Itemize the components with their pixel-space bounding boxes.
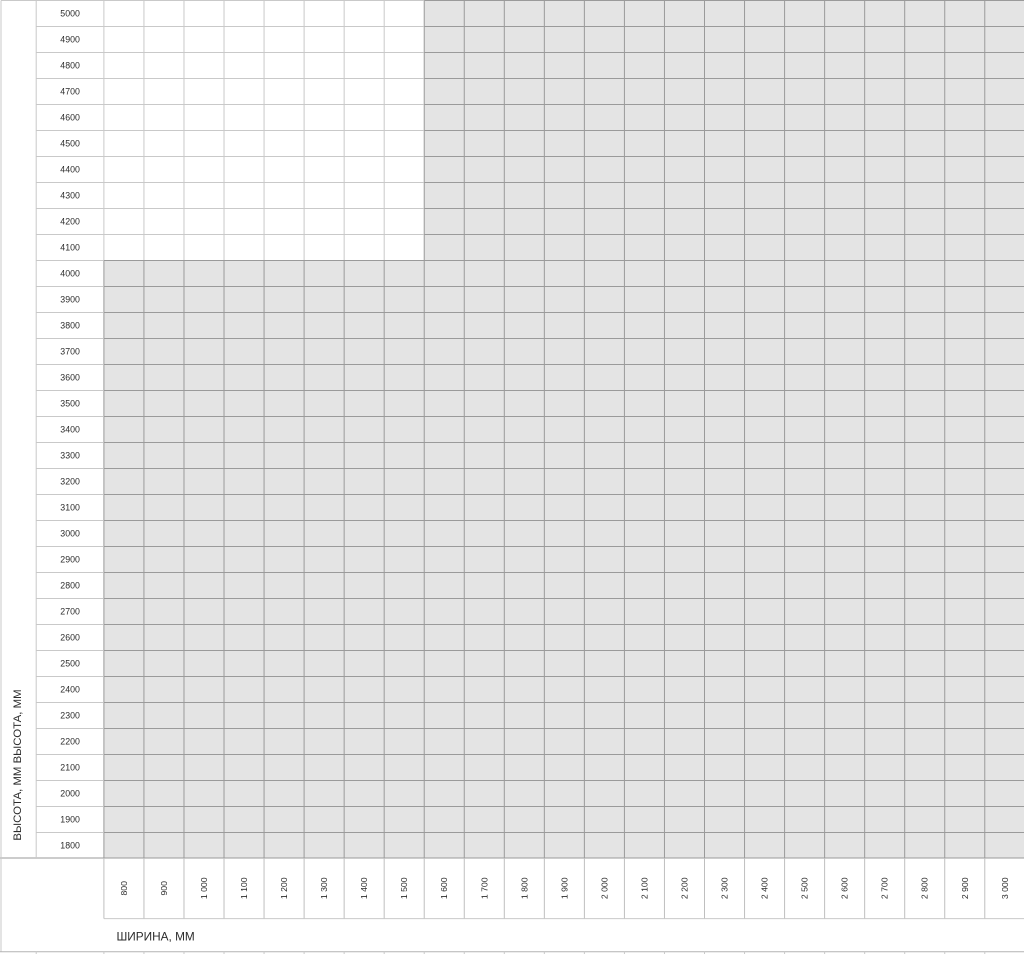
svg-text:3500: 3500	[60, 399, 80, 409]
svg-text:2500: 2500	[60, 659, 80, 669]
svg-text:1 000: 1 000	[199, 877, 209, 899]
svg-text:ВЫСОТА, ММ ВЫСОТА, ММ: ВЫСОТА, ММ ВЫСОТА, ММ	[12, 689, 24, 840]
svg-text:3300: 3300	[60, 451, 80, 461]
svg-text:2600: 2600	[60, 633, 80, 643]
svg-text:4000: 4000	[60, 269, 80, 279]
svg-text:1900: 1900	[60, 815, 80, 825]
svg-text:2 200: 2 200	[679, 877, 689, 899]
svg-text:3000: 3000	[60, 529, 80, 539]
svg-text:2 000: 2 000	[599, 877, 609, 899]
svg-text:1 900: 1 900	[559, 877, 569, 899]
svg-text:4200: 4200	[60, 217, 80, 227]
svg-text:1 400: 1 400	[359, 877, 369, 899]
svg-text:4500: 4500	[60, 139, 80, 149]
svg-text:2 700: 2 700	[880, 877, 890, 899]
svg-text:2200: 2200	[60, 737, 80, 747]
svg-text:2100: 2100	[60, 763, 80, 773]
svg-text:1 700: 1 700	[479, 877, 489, 899]
svg-text:900: 900	[159, 881, 169, 896]
svg-text:4100: 4100	[60, 243, 80, 253]
svg-text:2 800: 2 800	[920, 877, 930, 899]
svg-text:2800: 2800	[60, 581, 80, 591]
svg-text:2000: 2000	[60, 789, 80, 799]
svg-text:4800: 4800	[60, 61, 80, 71]
svg-text:2300: 2300	[60, 711, 80, 721]
svg-text:2 300: 2 300	[720, 877, 730, 899]
svg-text:3100: 3100	[60, 503, 80, 513]
svg-text:4600: 4600	[60, 113, 80, 123]
svg-text:2 100: 2 100	[639, 877, 649, 899]
svg-text:1 100: 1 100	[239, 877, 249, 899]
svg-text:2 600: 2 600	[840, 877, 850, 899]
svg-text:3600: 3600	[60, 373, 80, 383]
svg-text:3800: 3800	[60, 321, 80, 331]
svg-text:5000: 5000	[60, 9, 80, 19]
svg-text:3900: 3900	[60, 295, 80, 305]
svg-text:3 000: 3 000	[1000, 877, 1010, 899]
svg-text:2 500: 2 500	[800, 877, 810, 899]
svg-text:2900: 2900	[60, 555, 80, 565]
svg-text:2 400: 2 400	[760, 877, 770, 899]
svg-text:1800: 1800	[60, 841, 80, 851]
svg-text:1 500: 1 500	[399, 877, 409, 899]
svg-text:3700: 3700	[60, 347, 80, 357]
svg-text:1 300: 1 300	[319, 877, 329, 899]
svg-text:4400: 4400	[60, 165, 80, 175]
svg-text:2400: 2400	[60, 685, 80, 695]
svg-text:800: 800	[119, 881, 129, 896]
svg-text:ШИРИНА, ММ: ШИРИНА, ММ	[117, 930, 195, 944]
svg-text:1 800: 1 800	[519, 877, 529, 899]
svg-text:4700: 4700	[60, 87, 80, 97]
svg-text:2700: 2700	[60, 607, 80, 617]
svg-text:1 600: 1 600	[439, 877, 449, 899]
svg-text:3200: 3200	[60, 477, 80, 487]
svg-text:4300: 4300	[60, 191, 80, 201]
svg-text:3400: 3400	[60, 425, 80, 435]
svg-text:4900: 4900	[60, 35, 80, 45]
svg-text:2 900: 2 900	[960, 877, 970, 899]
svg-text:1 200: 1 200	[279, 877, 289, 899]
